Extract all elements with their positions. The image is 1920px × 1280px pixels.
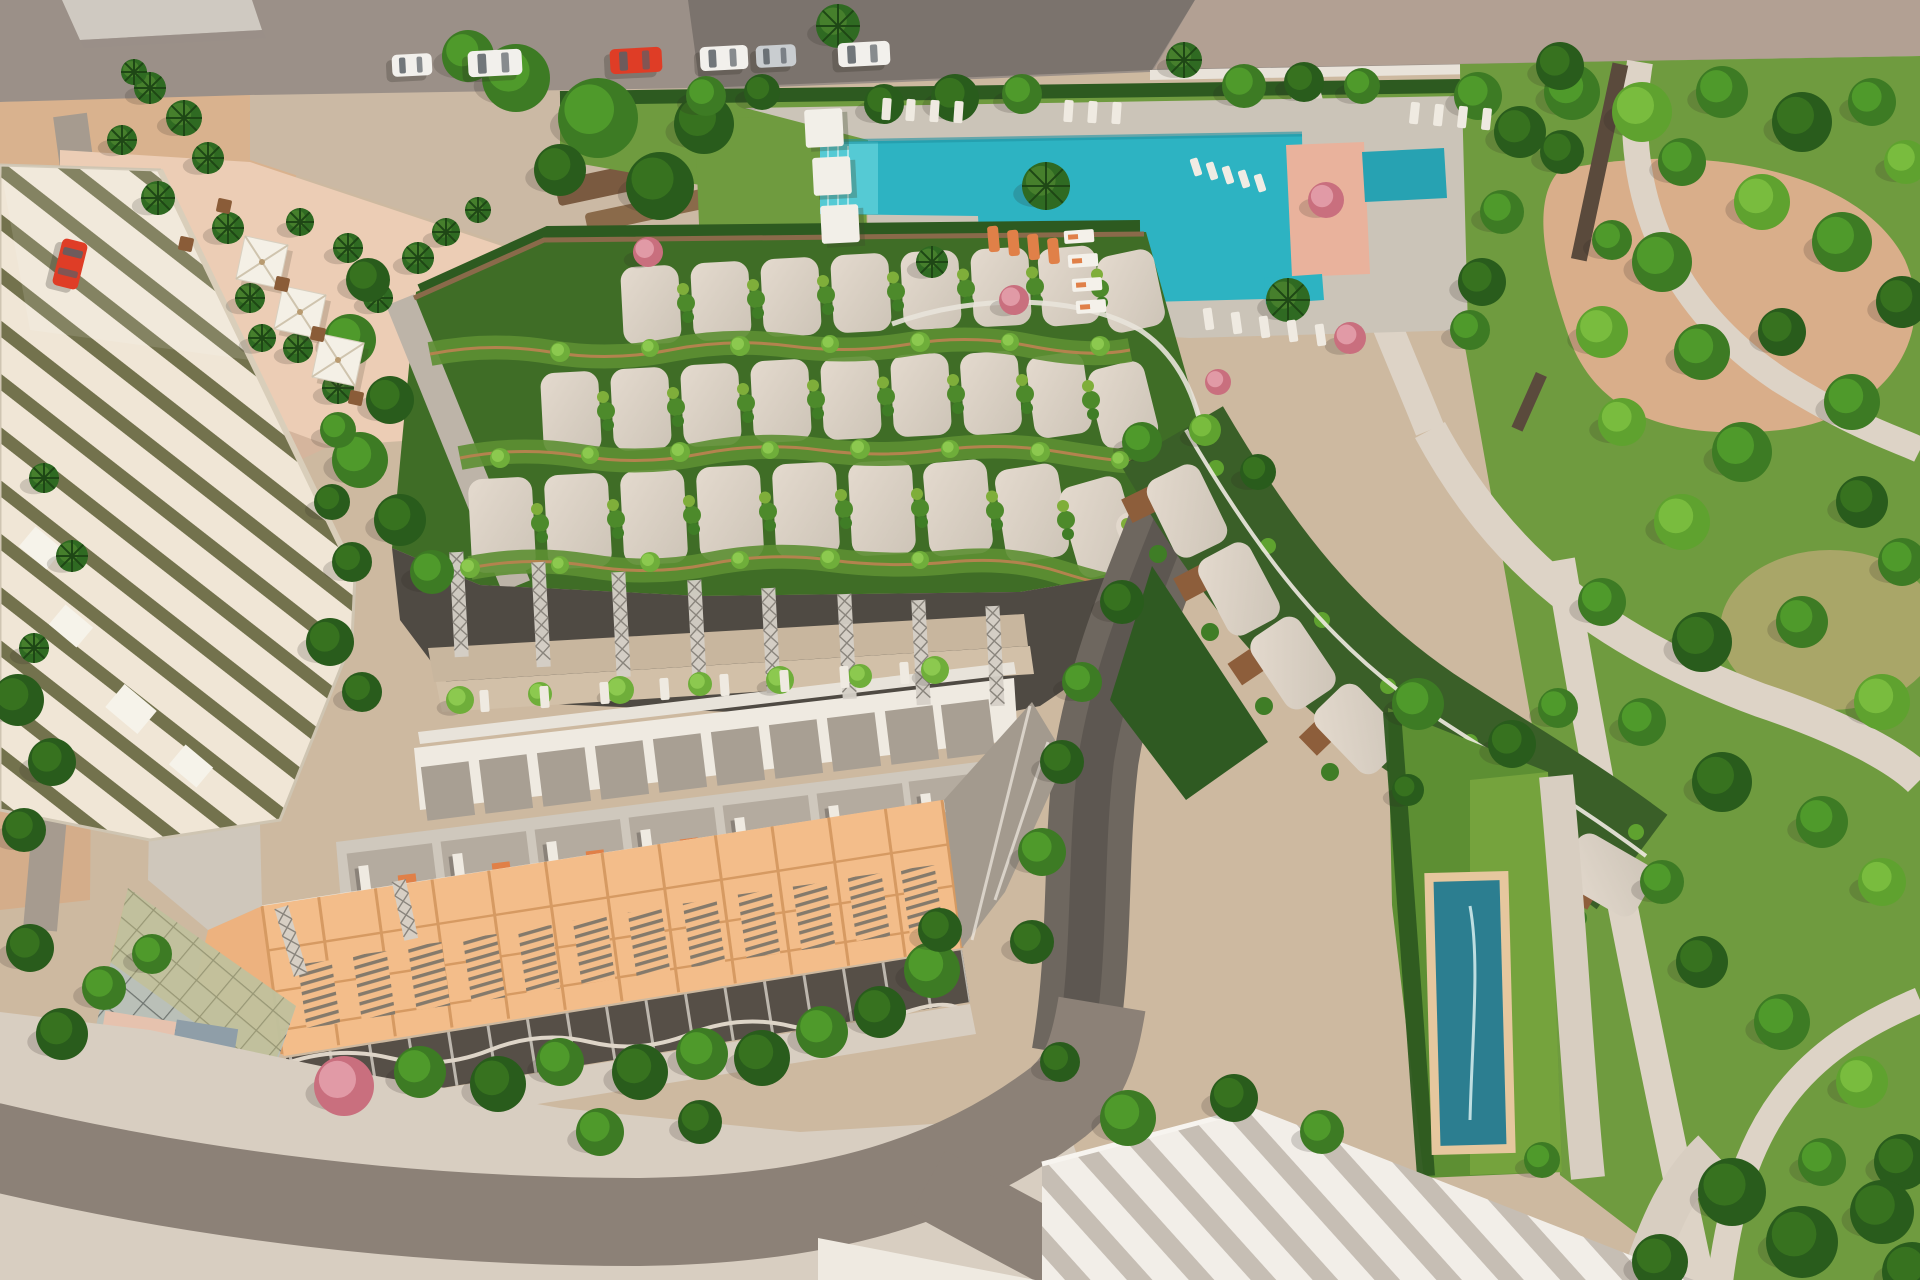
tree-highlight — [1458, 76, 1488, 106]
planter-strip — [947, 374, 959, 386]
planter-strip — [1149, 545, 1167, 563]
palm-fronds — [1022, 162, 1070, 210]
tree-highlight — [1828, 378, 1863, 413]
roof-panel — [830, 253, 892, 334]
planter-strip — [737, 394, 755, 412]
planter-strip — [952, 402, 964, 414]
car — [699, 45, 748, 71]
tree-highlight — [1396, 682, 1428, 714]
orange-lounger — [1047, 238, 1060, 265]
planter-strip — [882, 405, 894, 417]
planter-strip — [986, 502, 1004, 520]
sun-lounger — [479, 690, 490, 713]
tree-highlight — [1700, 70, 1732, 102]
tree-highlight — [1697, 757, 1734, 794]
palm-fronds — [1266, 278, 1310, 322]
tree-highlight — [462, 560, 474, 572]
planter-strip — [536, 531, 548, 543]
gray-roof — [653, 733, 707, 792]
tree-highlight — [1703, 1163, 1745, 1205]
sun-lounger — [899, 662, 910, 685]
sun-lounger — [953, 101, 964, 124]
orange-lounger — [1027, 234, 1040, 261]
planter-strip — [747, 279, 759, 291]
gray-roof — [537, 747, 591, 806]
orange-lounger — [1007, 230, 1020, 257]
tree-highlight — [1001, 287, 1020, 306]
car — [837, 41, 890, 68]
palm-fronds — [192, 142, 224, 174]
tree-highlight — [370, 380, 400, 410]
planter-strip — [531, 514, 549, 532]
pool-sign-mark — [1072, 258, 1082, 264]
tree-highlight — [582, 447, 593, 458]
tree-highlight — [1878, 1138, 1913, 1173]
planter-strip — [667, 387, 679, 399]
tree-highlight — [690, 674, 705, 689]
tree-highlight — [923, 658, 940, 675]
tree-highlight — [1636, 1238, 1671, 1273]
cafe-table — [178, 236, 195, 253]
gray-roof — [595, 740, 649, 799]
tree-highlight — [1112, 452, 1123, 463]
planter-strip — [602, 419, 614, 431]
sun-lounger — [929, 100, 940, 123]
tree-highlight — [414, 554, 441, 581]
tree-highlight — [1817, 217, 1854, 254]
planter-strip — [764, 520, 776, 532]
planter-strip — [672, 415, 684, 427]
cafe-table — [274, 276, 291, 293]
planter-strip — [822, 303, 834, 315]
tree-highlight — [1772, 1212, 1817, 1257]
sun-lounger — [1063, 100, 1074, 123]
tree-highlight — [10, 928, 40, 958]
tree-highlight — [1880, 280, 1912, 312]
tree-highlight — [1092, 338, 1104, 350]
planter-strip — [742, 411, 754, 423]
car-rear-glass — [642, 50, 650, 69]
planter-strip — [597, 402, 615, 420]
tree-highlight — [1637, 237, 1674, 274]
planter-strip — [1062, 528, 1074, 540]
tree-highlight — [1540, 46, 1570, 76]
cabana — [812, 156, 852, 196]
tree-highlight — [378, 498, 410, 530]
planter-strip — [887, 283, 905, 301]
tree-highlight — [732, 552, 743, 563]
tree-highlight — [1738, 178, 1773, 213]
palm-fronds — [212, 212, 244, 244]
palm-fronds — [1166, 42, 1202, 78]
kids-pool — [1362, 148, 1447, 202]
tree-highlight — [1453, 313, 1478, 338]
tree-highlight — [1527, 1145, 1549, 1167]
sun-lounger — [779, 670, 790, 693]
tree-highlight — [1043, 1045, 1068, 1070]
planter-strip — [677, 283, 689, 295]
palm-fronds — [286, 208, 314, 236]
planter-strip — [531, 503, 543, 515]
tree-highlight — [1287, 65, 1312, 90]
tree-highlight — [1395, 777, 1415, 797]
car-windshield — [847, 45, 856, 63]
tree-highlight — [631, 157, 673, 199]
palm-fronds — [29, 463, 59, 493]
pool-sign-mark — [1080, 304, 1090, 310]
tree-highlight — [1582, 582, 1612, 612]
tree-highlight — [1014, 924, 1041, 951]
tree-highlight — [40, 1012, 72, 1044]
umbrella-pole — [335, 357, 341, 363]
gray-roof — [421, 761, 475, 820]
tree-highlight — [1226, 68, 1253, 95]
tree-highlight — [672, 444, 684, 456]
palm-fronds — [816, 4, 860, 48]
tree-highlight — [1595, 223, 1620, 248]
roof-panel — [610, 367, 672, 452]
tree-highlight — [1802, 1142, 1832, 1172]
palm-fronds — [465, 197, 491, 223]
planter-strip — [835, 500, 853, 518]
orange-lounger — [987, 226, 1000, 253]
planter-strip — [807, 380, 819, 392]
tree-highlight — [1005, 77, 1030, 102]
sun-lounger — [599, 682, 610, 705]
planter-strip — [892, 300, 904, 312]
car — [755, 44, 796, 68]
tree-highlight — [1484, 194, 1511, 221]
gray-roof — [885, 705, 939, 764]
tree-highlight — [912, 334, 924, 346]
tree-highlight — [323, 415, 345, 437]
planter-strip — [887, 272, 899, 284]
tree-highlight — [738, 1034, 773, 1069]
planter-strip — [840, 517, 852, 529]
planter-strip — [807, 391, 825, 409]
car-rear-glass — [416, 56, 422, 72]
tree-highlight — [642, 340, 653, 351]
tree-highlight — [732, 338, 744, 350]
tree-highlight — [1044, 744, 1071, 771]
tree-highlight — [135, 937, 160, 962]
tree-highlight — [1192, 417, 1212, 437]
palm-fronds — [402, 242, 434, 274]
cafe-table — [348, 390, 365, 407]
car — [609, 47, 662, 75]
umbrella-pole — [297, 309, 303, 315]
cabana — [804, 108, 844, 148]
planter-strip — [1082, 380, 1094, 392]
palm-fronds — [19, 633, 49, 663]
planter-strip — [911, 488, 923, 500]
car-rear-glass — [780, 47, 786, 63]
tree-highlight — [682, 1104, 709, 1131]
tree-highlight — [1662, 142, 1692, 172]
planter-strip — [1016, 374, 1028, 386]
tree-highlight — [1347, 71, 1369, 93]
tree-highlight — [852, 441, 864, 453]
planter-strip — [1321, 763, 1339, 781]
tree-highlight — [1617, 87, 1654, 124]
tree-highlight — [689, 79, 714, 104]
sun-lounger — [719, 674, 730, 697]
tree-highlight — [86, 970, 113, 997]
planter-strip — [688, 523, 700, 535]
tree-highlight — [1541, 691, 1566, 716]
planter-strip — [667, 398, 685, 416]
roof-panel — [772, 461, 841, 558]
tree-highlight — [1840, 480, 1872, 512]
tree-highlight — [1243, 457, 1265, 479]
car — [391, 53, 432, 77]
tree-highlight — [1644, 864, 1671, 891]
planter-strip — [1057, 511, 1075, 529]
tree-highlight — [1758, 998, 1793, 1033]
tree-highlight — [912, 552, 923, 563]
tree-highlight — [32, 742, 62, 772]
palm-fronds — [248, 324, 276, 352]
tree-highlight — [1304, 1114, 1331, 1141]
roof-panel — [680, 363, 742, 448]
planter-strip — [817, 286, 835, 304]
palm-fronds — [141, 181, 175, 215]
roof-panel — [922, 458, 994, 557]
tree-highlight — [1762, 312, 1792, 342]
planter-strip — [957, 280, 975, 298]
tree-highlight — [1104, 1094, 1139, 1129]
tree-highlight — [1492, 724, 1522, 754]
tree-highlight — [1125, 425, 1150, 450]
sun-lounger — [1111, 102, 1122, 125]
planter-strip — [597, 391, 609, 403]
cafe-table — [310, 326, 327, 343]
tree-highlight — [822, 336, 833, 347]
car — [467, 49, 522, 78]
tree-highlight — [1065, 665, 1090, 690]
tree-highlight — [1214, 1078, 1244, 1108]
roof-panel — [760, 257, 822, 338]
sun-lounger — [659, 678, 670, 701]
planter-strip — [991, 519, 1003, 531]
tree-highlight — [762, 442, 773, 453]
tree-highlight — [858, 990, 890, 1022]
planter-strip — [1021, 402, 1033, 414]
tree-highlight — [1840, 1060, 1872, 1092]
tree-highlight — [1858, 678, 1893, 713]
tree-highlight — [1678, 328, 1713, 363]
car-windshield — [708, 49, 717, 67]
planter-strip — [835, 489, 847, 501]
tree-highlight — [335, 545, 360, 570]
roof-panel — [959, 350, 1023, 436]
palm-fronds — [121, 59, 147, 85]
palm-fronds — [56, 540, 88, 572]
tree-highlight — [1780, 600, 1812, 632]
tree-highlight — [552, 344, 564, 356]
tree-highlight — [6, 812, 33, 839]
gray-roof — [827, 712, 881, 771]
planter-strip — [612, 527, 624, 539]
planter-strip — [737, 383, 749, 395]
planter-strip — [877, 388, 895, 406]
roof-panel — [620, 265, 682, 346]
tree-highlight — [642, 554, 654, 566]
tree-highlight — [1777, 97, 1814, 134]
aerial-render-stage — [0, 0, 1920, 1280]
palm-fronds — [107, 125, 137, 155]
roof-panel — [890, 353, 952, 438]
tree-highlight — [822, 551, 834, 563]
umbrella-pole — [259, 259, 265, 265]
tree-highlight — [310, 622, 340, 652]
planter-strip — [759, 503, 777, 521]
car-windshield — [477, 53, 487, 73]
roof-panel — [820, 356, 882, 441]
palm-fronds — [432, 218, 460, 246]
cafe-table — [216, 198, 233, 215]
tree-highlight — [1855, 1185, 1895, 1225]
aerial-render — [0, 0, 1920, 1280]
tree-highlight — [564, 84, 614, 134]
planter-strip — [812, 408, 824, 420]
tree-highlight — [1622, 702, 1652, 732]
cabana — [820, 204, 860, 244]
planter-strip — [1628, 824, 1644, 840]
tree-highlight — [800, 1010, 832, 1042]
palm-fronds — [166, 100, 202, 136]
tree-highlight — [1104, 584, 1131, 611]
tree-highlight — [1717, 427, 1754, 464]
tree-highlight — [1882, 542, 1912, 572]
roof-panel — [750, 359, 812, 444]
planter-strip — [1016, 385, 1034, 403]
tree-highlight — [1337, 325, 1357, 345]
planter-strip — [1201, 623, 1219, 641]
tree-highlight — [680, 1032, 712, 1064]
car-rear-glass — [501, 52, 510, 72]
tree-highlight — [616, 1048, 651, 1083]
planter-strip — [911, 499, 929, 517]
roof-panel — [620, 468, 689, 565]
planter-strip — [677, 294, 695, 312]
tree-highlight — [1658, 498, 1693, 533]
tree-highlight — [1862, 862, 1892, 892]
planter-strip — [817, 275, 829, 287]
tree-highlight — [1544, 134, 1571, 161]
tree-highlight — [1462, 262, 1492, 292]
tree-highlight — [1580, 310, 1612, 342]
tree-highlight — [538, 148, 570, 180]
palm-fronds — [916, 246, 948, 278]
planter-strip — [1082, 391, 1100, 409]
tree-highlight — [1032, 444, 1044, 456]
gray-roof — [769, 719, 823, 778]
tree-highlight — [850, 666, 865, 681]
planter-strip — [607, 499, 619, 511]
planter-strip — [947, 385, 965, 403]
tree-highlight — [1800, 800, 1832, 832]
wavy-band-1 — [430, 339, 1130, 356]
car-rear-glass — [729, 48, 737, 66]
car-windshield — [399, 57, 406, 73]
tree-highlight — [580, 1112, 610, 1142]
tree-highlight — [492, 450, 504, 462]
tree-highlight — [317, 487, 339, 509]
tree-highlight — [350, 262, 377, 289]
sun-lounger — [905, 99, 916, 122]
tree-highlight — [398, 1050, 430, 1082]
pool-sign-mark — [1068, 234, 1078, 240]
planter-strip — [759, 492, 771, 504]
roof-panel — [690, 261, 752, 342]
planter-strip — [1026, 278, 1044, 296]
tree-highlight — [1852, 82, 1882, 112]
planter-strip — [1087, 408, 1099, 420]
tree-highlight — [922, 912, 949, 939]
planter-strip — [747, 290, 765, 308]
roof-panel — [848, 459, 917, 556]
planter-strip — [683, 495, 695, 507]
tree-highlight — [608, 678, 625, 695]
sun-lounger — [881, 98, 892, 121]
tree-highlight — [1002, 334, 1013, 345]
tree-highlight — [1022, 832, 1052, 862]
tree-highlight — [1602, 402, 1632, 432]
tree-highlight — [635, 239, 654, 258]
tree-highlight — [942, 441, 953, 452]
tree-highlight — [1677, 617, 1714, 654]
planter-strip — [607, 510, 625, 528]
planter-strip — [1057, 500, 1069, 512]
gray-roof — [941, 699, 995, 758]
planter-strip — [877, 377, 889, 389]
planter-strip — [986, 491, 998, 503]
tree-highlight — [345, 675, 370, 700]
tree-highlight — [448, 688, 465, 705]
planter-strip — [1026, 267, 1038, 279]
tree-highlight — [552, 557, 563, 568]
car-windshield — [619, 51, 628, 70]
gray-roof — [711, 726, 765, 785]
tree-highlight — [540, 1042, 570, 1072]
sun-lounger — [839, 666, 850, 689]
gray-roof — [479, 754, 533, 813]
tree-highlight — [1498, 110, 1530, 142]
pool-sign-mark — [1076, 282, 1086, 288]
planter-strip — [752, 307, 764, 319]
tree-highlight — [1311, 185, 1333, 207]
tree-highlight — [319, 1061, 356, 1098]
planter-strip — [957, 269, 969, 281]
planter-strip — [916, 516, 928, 528]
car-rear-glass — [870, 44, 878, 62]
palm-fronds — [333, 233, 363, 263]
tree-highlight — [1207, 371, 1223, 387]
sun-lounger — [1087, 101, 1098, 124]
tree-highlight — [474, 1060, 509, 1095]
tree-highlight — [747, 77, 769, 99]
planter-strip — [683, 506, 701, 524]
planter-strip — [682, 311, 694, 323]
planter-strip — [1255, 697, 1273, 715]
tree-highlight — [1888, 144, 1915, 171]
sun-lounger — [539, 686, 550, 709]
tree-highlight — [1680, 940, 1712, 972]
car-windshield — [763, 48, 770, 64]
